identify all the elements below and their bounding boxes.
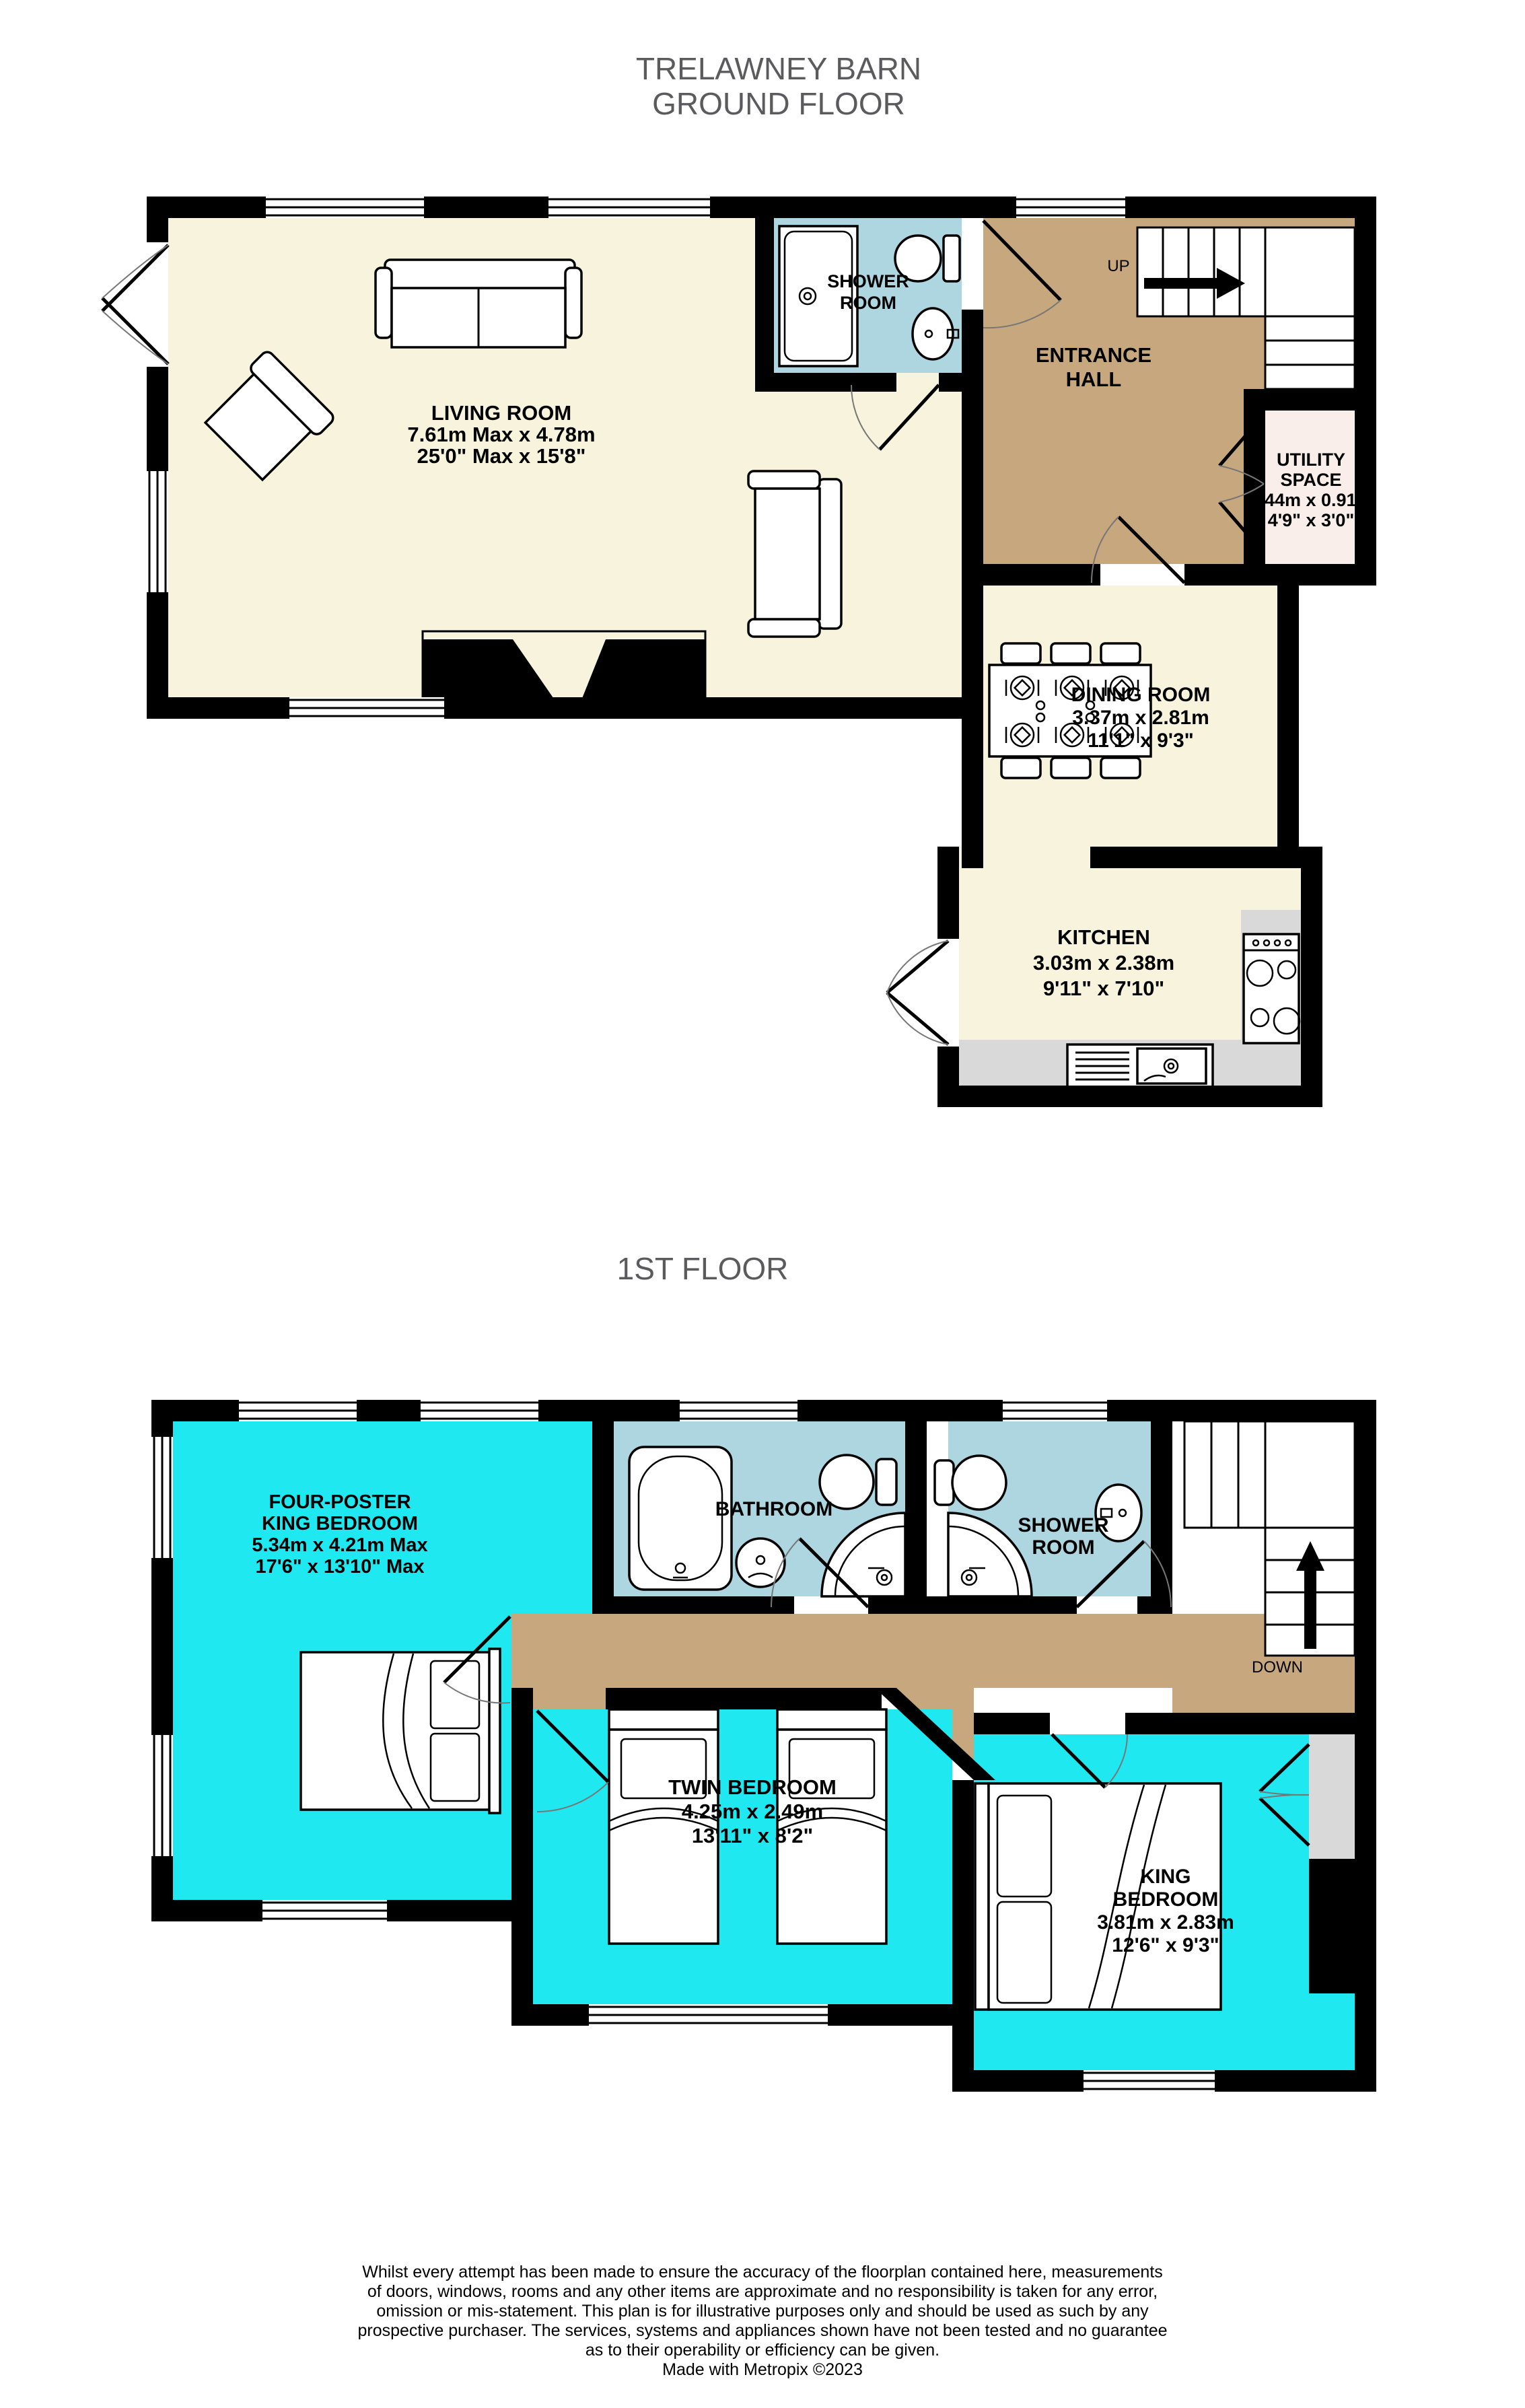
bed-icon: [301, 1649, 500, 1813]
room-name: UTILITY: [1249, 450, 1372, 470]
plan-title-line2: GROUND FLOOR: [636, 86, 921, 121]
down-text: DOWN: [1252, 1658, 1303, 1677]
room-label-shower-ground: SHOWER ROOM: [827, 271, 909, 314]
floorplan-graphics: [0, 0, 1525, 2408]
room-dim-ft: 11'1" x 9'3": [1071, 730, 1211, 752]
room-dim-ft: 13'11" x 8'2": [668, 1824, 837, 1848]
disclaimer-line: as to their operability or efficiency ca…: [357, 2341, 1167, 2360]
disclaimer-line: omission or mis-statement. This plan is …: [357, 2302, 1167, 2321]
floorplan-page: TRELAWNEY BARN GROUND FLOOR LIVING ROOM …: [0, 0, 1525, 2408]
room-dim-m: 3.81m x 2.83m: [1097, 1911, 1234, 1934]
basin-icon: [736, 1538, 785, 1587]
room-name: LIVING ROOM: [407, 402, 595, 424]
disclaimer-line: prospective purchaser. The services, sys…: [357, 2321, 1167, 2341]
room-name: DINING ROOM: [1071, 684, 1211, 707]
room-dim-m: 3.37m x 2.81m: [1071, 707, 1211, 730]
room-label-bathroom: BATHROOM: [715, 1498, 832, 1521]
room-name: BATHROOM: [715, 1498, 832, 1521]
kitchen-sink-icon: [1067, 1044, 1213, 1088]
room-name: SHOWER: [1018, 1514, 1109, 1536]
room-label-kitchen: KITCHEN 3.03m x 2.38m 9'11" x 7'10": [1033, 925, 1174, 1001]
room-name: ENTRANCE: [1036, 343, 1151, 367]
floor2-title-text: 1ST FLOOR: [617, 1250, 789, 1287]
room-name: HALL: [1036, 367, 1151, 392]
room-dim-m: 4.25m x 2.49m: [668, 1800, 837, 1824]
room-name: KING BEDROOM: [252, 1513, 427, 1534]
room-name: TWIN BEDROOM: [668, 1775, 837, 1800]
room-label-dining: DINING ROOM 3.37m x 2.81m 11'1" x 9'3": [1071, 684, 1211, 752]
room-name: SPACE: [1249, 470, 1372, 490]
disclaimer: Whilst every attempt has been made to en…: [357, 2263, 1167, 2380]
up-text: UP: [1107, 257, 1129, 276]
room-name: ROOM: [1018, 1536, 1109, 1559]
room-label-four-poster: FOUR-POSTER KING BEDROOM 5.34m x 4.21m M…: [252, 1491, 427, 1578]
room-label-living: LIVING ROOM 7.61m Max x 4.78m 25'0" Max …: [407, 402, 595, 467]
sofa-icon: [376, 260, 581, 347]
room-name: KITCHEN: [1033, 925, 1174, 950]
room-dim-ft: 17'6" x 13'10" Max: [252, 1556, 427, 1578]
room-dim-ft: 4'9" x 3'0": [1249, 510, 1372, 530]
room-label-twin: TWIN BEDROOM 4.25m x 2.49m 13'11" x 8'2": [668, 1775, 837, 1848]
stairs-down-label: DOWN: [1252, 1658, 1303, 1677]
plan-title: TRELAWNEY BARN GROUND FLOOR: [636, 51, 921, 121]
floor2-title: 1ST FLOOR: [617, 1250, 789, 1287]
oven-icon: [1244, 934, 1300, 1043]
disclaimer-line: of doors, windows, rooms and any other i…: [357, 2282, 1167, 2302]
toilet-icon: [935, 1456, 1006, 1510]
room-dim-ft: 12'6" x 9'3": [1097, 1934, 1234, 1957]
room-dim-m: 5.34m x 4.21m Max: [252, 1534, 427, 1556]
disclaimer-line: Whilst every attempt has been made to en…: [357, 2263, 1167, 2282]
room-name: KING: [1097, 1866, 1234, 1888]
room-dim-ft: 9'11" x 7'10": [1033, 976, 1174, 1001]
room-label-entrance-hall: ENTRANCE HALL: [1036, 343, 1151, 392]
plan-title-line1: TRELAWNEY BARN: [636, 51, 921, 86]
room-name: BEDROOM: [1097, 1888, 1234, 1911]
room-dim-m: 1.44m x 0.91m: [1249, 490, 1372, 510]
room-label-utility: UTILITY SPACE 1.44m x 0.91m 4'9" x 3'0": [1249, 450, 1372, 530]
room-dim-m: 7.61m Max x 4.78m: [407, 424, 595, 446]
room-name: ROOM: [827, 292, 909, 314]
room-dim-m: 3.03m x 2.38m: [1033, 950, 1174, 976]
stairs-up-label: UP: [1107, 257, 1129, 276]
room-name: SHOWER: [827, 271, 909, 292]
credit-line: Made with Metropix ©2023: [357, 2360, 1167, 2380]
room-dim-ft: 25'0" Max x 15'8": [407, 446, 595, 467]
sofa-icon: [748, 471, 841, 637]
room-label-king: KING BEDROOM 3.81m x 2.83m 12'6" x 9'3": [1097, 1866, 1234, 1957]
room-label-shower-first: SHOWER ROOM: [1018, 1514, 1109, 1559]
room-name: FOUR-POSTER: [252, 1491, 427, 1513]
